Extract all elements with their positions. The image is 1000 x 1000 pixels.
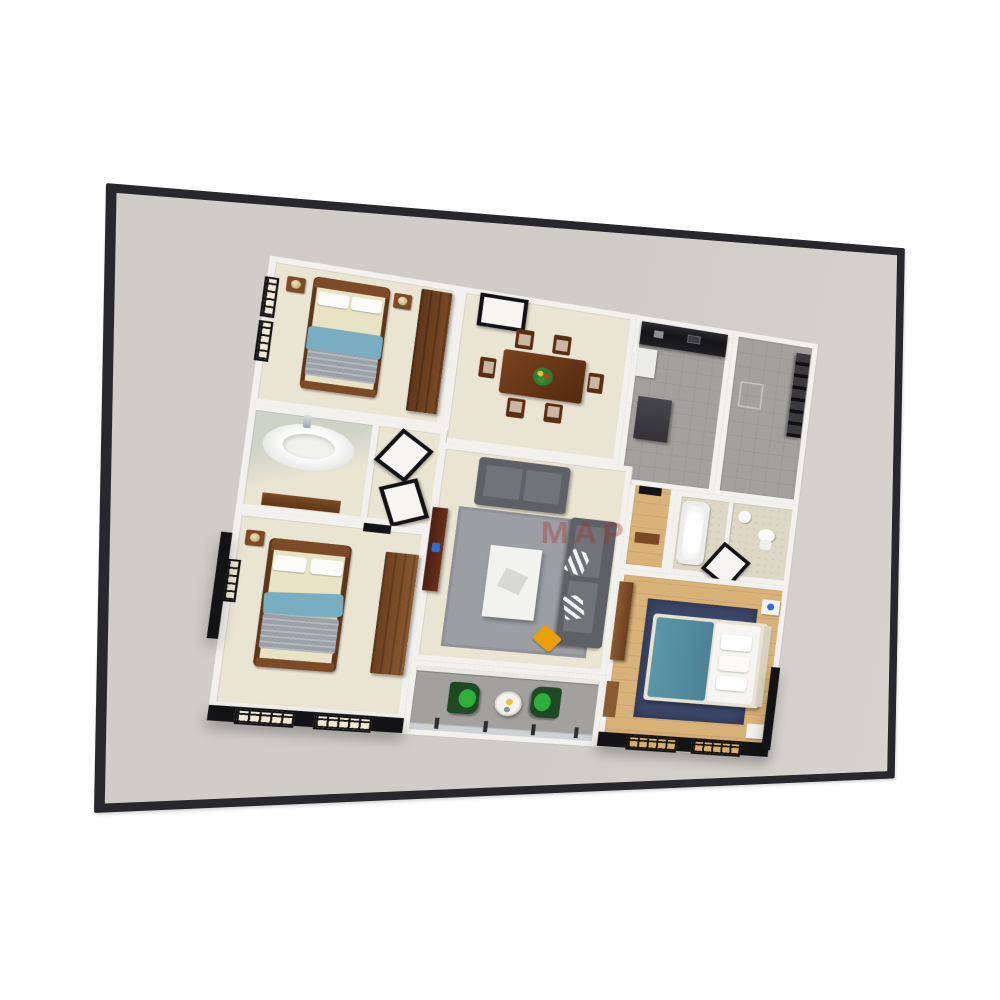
fruit-bowl [532,366,554,387]
decor-blue [767,603,775,611]
entry-door-panel [476,292,528,332]
room-bathroom-2 [666,490,798,586]
coffee-table [482,545,543,621]
sink [738,510,752,524]
striped-cushion [563,595,585,620]
dining-table [498,349,586,404]
dining-chair [478,356,497,378]
room-dining [440,286,637,465]
door-panel [379,478,430,527]
double-bed [643,613,769,708]
table-lamp [397,296,407,306]
pillow [720,634,753,652]
dining-chair [587,372,605,394]
wall-cabinet [603,681,620,718]
room-bedroom-1 [250,256,461,429]
nightstand [244,529,265,546]
teal-blanket [647,617,714,701]
kitchen-island [633,396,672,443]
lattice-window [234,709,296,728]
window [260,276,280,318]
nightstand [286,276,307,294]
room-living [412,442,633,675]
window [254,320,274,362]
door-mat [634,532,660,545]
table-lamp [290,279,301,289]
shelving-rack [786,353,810,438]
double-bed [299,276,391,398]
display-screen: MAP [105,193,897,804]
pillow [715,676,747,692]
double-bed [253,538,353,673]
decor-blue [431,542,440,552]
lattice-window [313,714,373,733]
room-balcony [402,660,606,747]
fridge [635,347,657,378]
wall-display-panel: MAP [94,183,905,813]
room-master-bedroom [597,569,789,758]
lattice-window [625,735,677,753]
green-armchair [529,686,562,719]
dining-chair [514,329,534,351]
door-panel [374,428,434,482]
balcony-table [493,690,523,717]
room-bathroom-1 [236,403,380,523]
white-duvet [706,623,761,705]
loveseat [474,457,571,515]
dining-chair [543,403,563,424]
dining-chair [506,397,526,418]
floor-plan [207,256,818,758]
lattice-window [691,740,742,757]
nightstand [393,293,413,311]
doorway-gap [363,523,392,534]
gray-throw [258,612,339,654]
watermark: MAP [540,516,629,552]
dining-chair [552,334,572,355]
table-lamp [249,533,260,543]
vanity [261,492,341,513]
doorway-gap [639,486,662,497]
bathtub [675,500,710,566]
toilet-seat [759,539,772,551]
nightstand [761,599,781,615]
room-bedroom-2 [209,509,429,720]
green-armchair [446,681,481,715]
pillow [717,655,750,673]
floor-hatch [737,381,763,410]
